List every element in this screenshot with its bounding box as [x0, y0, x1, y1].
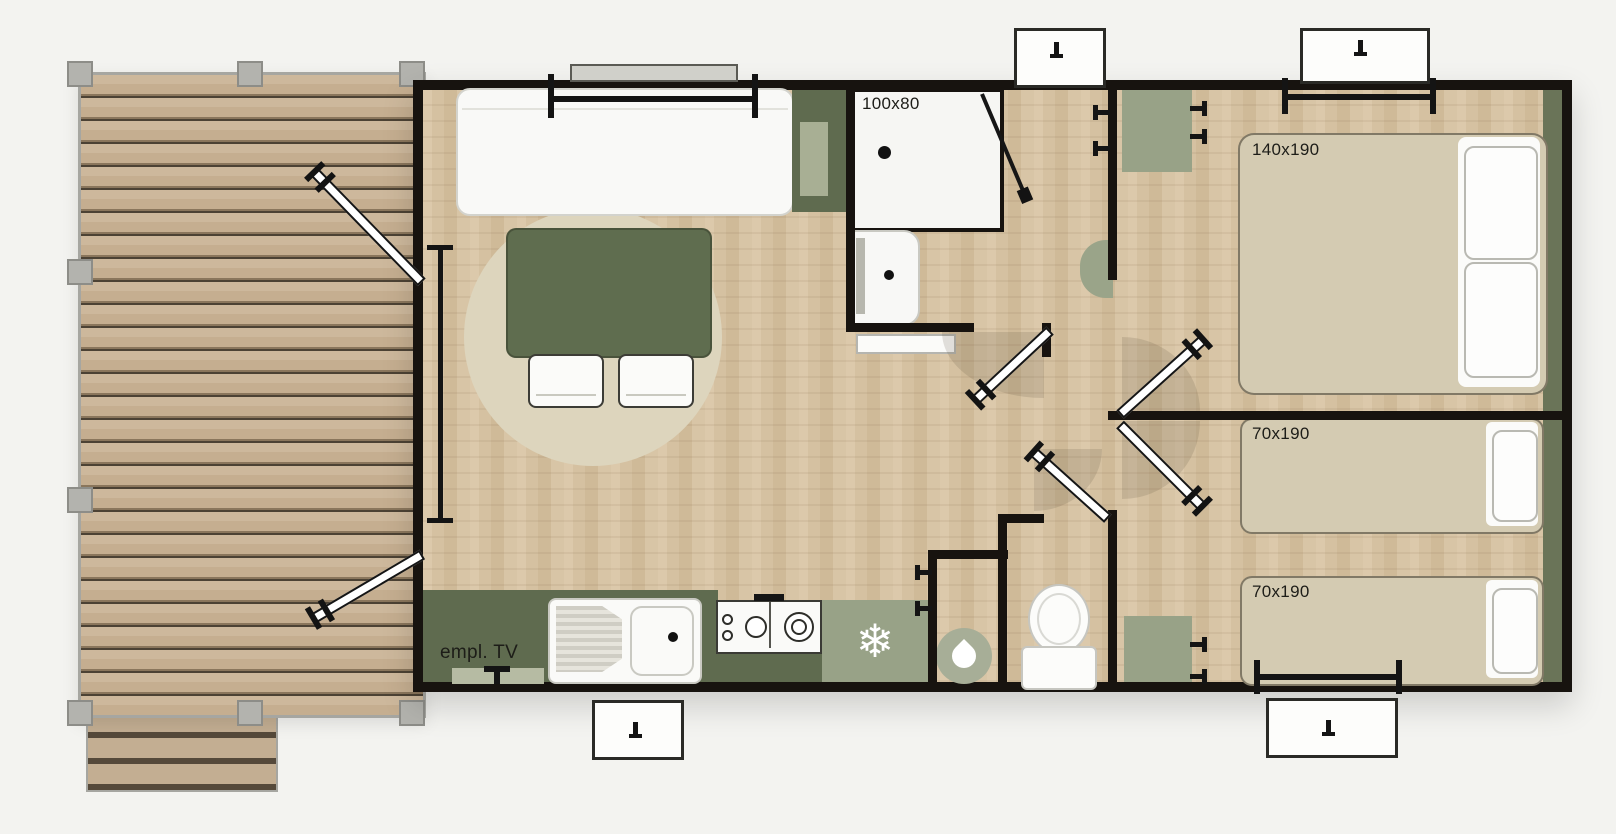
deck-post [237, 61, 263, 87]
toilet-bowl-inner [1037, 593, 1081, 645]
wall-closet-top [928, 550, 1008, 559]
sofa [456, 88, 794, 216]
stove-burner-large-inner [791, 619, 807, 635]
sideboard-shelf [800, 122, 828, 196]
chair [528, 354, 604, 408]
floor-plan: empl. TV ❄ 100x80 140x190 [0, 0, 1616, 834]
wardrobe-bedroom2 [1124, 616, 1192, 682]
pillow [1464, 146, 1538, 260]
deck-post [399, 700, 425, 726]
deck-post [67, 259, 93, 285]
washbasin-faucet-dot [884, 270, 894, 280]
shower-drain [878, 146, 891, 159]
toilet-tank [1021, 646, 1097, 690]
window-bottom-bedroom2 [1266, 698, 1398, 758]
wall-bathroom-bottom [846, 323, 974, 332]
window-bottom-kitchen [592, 700, 684, 760]
hall-shelf [856, 334, 956, 354]
window-latch-icon [1050, 54, 1063, 58]
pillow [1492, 588, 1538, 674]
washbasin-backsplash [856, 238, 865, 314]
sink-bowl [630, 606, 694, 676]
wall-bathroom-left [846, 90, 855, 332]
wall-hall-lower [1108, 510, 1117, 682]
deck-post [237, 700, 263, 726]
stove-knob [722, 614, 733, 625]
sink-faucet-dot [668, 632, 678, 642]
wardrobe-bedroom1 [1122, 90, 1192, 172]
tv-icon-stem [494, 670, 500, 684]
bedroom1-window-line [1286, 94, 1436, 100]
sliding-door-track-cap [427, 245, 453, 250]
deck-post [67, 700, 93, 726]
pillow [1464, 262, 1538, 378]
water-heater [936, 628, 992, 684]
double-bed-size-label: 140x190 [1252, 140, 1319, 160]
sliding-door-track [438, 248, 443, 520]
stove-burner-small [745, 616, 767, 638]
deck-post [67, 61, 93, 87]
dining-table [506, 228, 712, 358]
wall-wc-left [998, 514, 1007, 682]
stove-grate-divider [769, 602, 771, 648]
window-top-hall [1014, 28, 1106, 88]
fridge: ❄ [822, 600, 928, 682]
bedroom1-window-cap [1282, 78, 1288, 114]
wall-bedroom-divider [1108, 411, 1572, 420]
bedroom1-window-cap [1430, 78, 1436, 114]
living-window-cap [752, 74, 758, 118]
shower-size-label: 100x80 [862, 94, 920, 114]
wall-wc-top [998, 514, 1044, 523]
snowflake-icon: ❄ [856, 618, 895, 664]
bedroom2-window-cap [1396, 660, 1402, 694]
wall-anchor [1190, 134, 1206, 139]
deck-post [67, 487, 93, 513]
single-bed-1-size-label: 70x190 [1252, 424, 1310, 444]
stove-handle [754, 594, 784, 601]
wall-anchor [1094, 146, 1110, 151]
living-window-cap [548, 74, 554, 118]
chair [618, 354, 694, 408]
window-latch-icon [1322, 732, 1335, 736]
wall-anchor [1190, 674, 1206, 679]
bedroom2-window-line [1258, 674, 1402, 680]
water-drop-icon [947, 639, 981, 673]
living-window-sill [570, 64, 738, 82]
sink-drainer [556, 606, 622, 672]
stove-knob [722, 630, 733, 641]
wall-anchor [916, 606, 932, 611]
wall-anchor [916, 570, 932, 575]
tv-location-label: empl. TV [440, 642, 518, 664]
window-latch-icon [629, 734, 642, 738]
sliding-door-track-cap [427, 518, 453, 523]
wall-anchor [1190, 106, 1206, 111]
window-latch-icon [1354, 52, 1367, 56]
single-bed-2-size-label: 70x190 [1252, 582, 1310, 602]
wall-hall-upper [1108, 90, 1117, 280]
living-window-line [550, 96, 756, 102]
bedroom2-window-cap [1254, 660, 1260, 694]
wall-anchor [1094, 110, 1110, 115]
window-top-bedroom1 [1300, 28, 1430, 84]
wall-anchor [1190, 642, 1206, 647]
deck-terrace [78, 72, 426, 718]
pillow [1492, 430, 1538, 522]
